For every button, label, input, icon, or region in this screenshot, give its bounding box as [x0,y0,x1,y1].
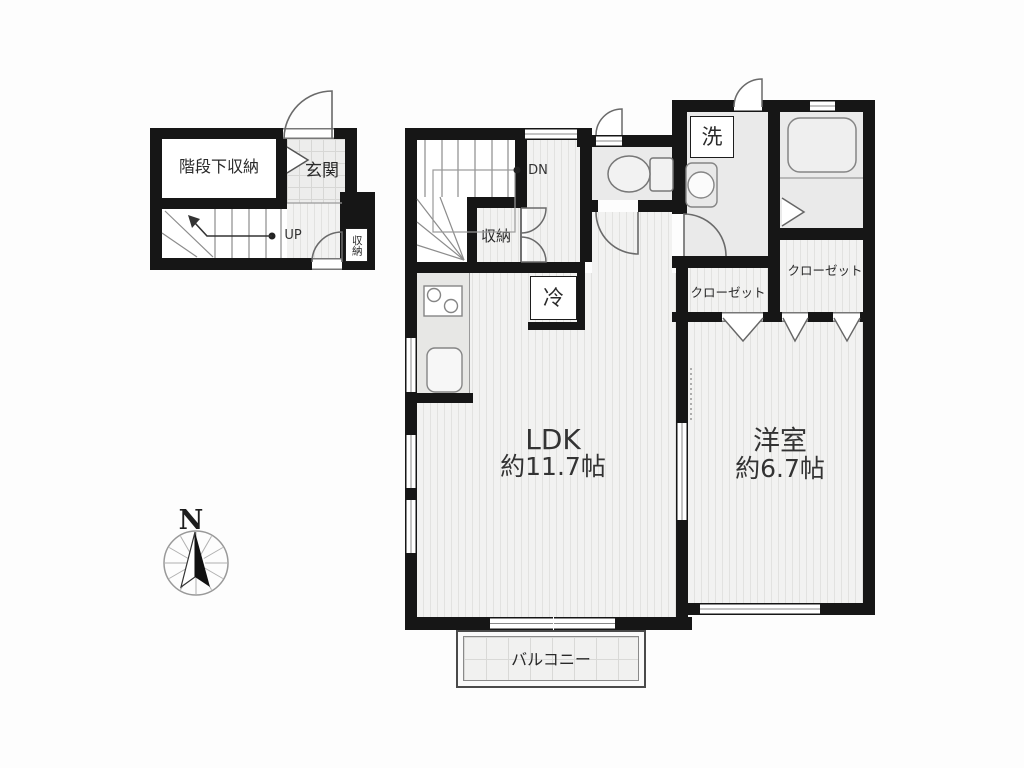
stairs-down-treads [417,140,508,260]
entrance-door-arc [284,91,332,139]
floor-plan-canvas: 収納 階段下収納 玄関 UP [0,0,1024,768]
closet-bifold-marks [723,318,860,341]
entrance-step-marker [287,147,308,173]
bathtub-icon [780,118,863,178]
storage-2f-door-arcs [521,208,546,262]
toilet-door-arc [596,212,638,254]
plan-linework [0,0,1024,768]
sink-icon [427,348,462,392]
stairs-down-rail [433,170,515,232]
storage-1f-door-arc [312,232,342,262]
bathroom-folding-door [782,198,804,226]
washroom-door-arc [684,214,726,256]
compass-icon [164,531,228,595]
washbasin-icon [686,163,717,207]
stove-icon [424,286,462,316]
dn-marker-dot [514,167,521,174]
toilet-window-arc [596,109,622,135]
toilet-icon [608,156,673,192]
compass-needle-black [195,532,210,587]
washroom-window-arc [734,79,762,107]
stairs-up-treads [162,209,281,258]
